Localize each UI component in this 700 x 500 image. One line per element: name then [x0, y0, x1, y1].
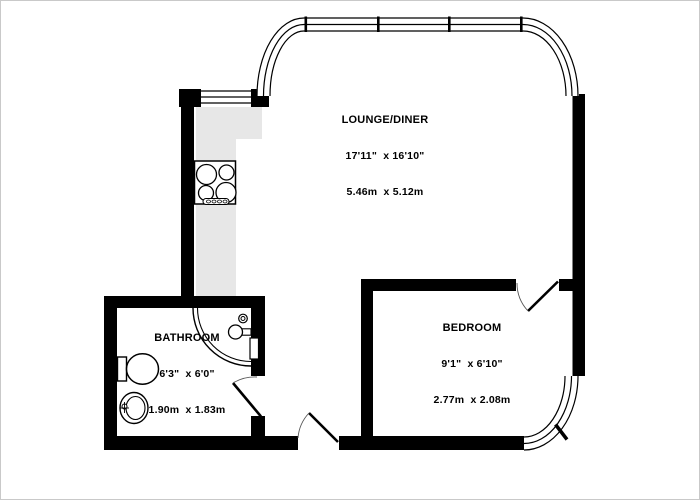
stove-icon — [195, 161, 237, 205]
room-size-imperial: 9'1" x 6'10" — [434, 358, 511, 370]
room-size-imperial: 6'3" x 6'0" — [149, 368, 226, 380]
bay-window-right-curve — [523, 18, 578, 96]
floorplan: LOUNGE/DINER 17'11" x 16'10" 5.46m x 5.1… — [0, 0, 700, 500]
room-size-metric: 1.90m x 1.83m — [149, 404, 226, 416]
room-name: BATHROOM — [149, 332, 226, 344]
bay-window-left-curve — [257, 18, 304, 96]
bedroom-label: BEDROOM 9'1" x 6'10" 2.77m x 2.08m — [434, 298, 511, 430]
room-size-imperial: 17'11" x 16'10" — [342, 150, 429, 162]
room-size-metric: 2.77m x 2.08m — [434, 394, 511, 406]
room-name: LOUNGE/DINER — [342, 114, 429, 126]
floorplan-canvas — [1, 1, 699, 499]
sink-icon — [120, 393, 148, 424]
kitchen-window — [201, 90, 251, 104]
room-name: BEDROOM — [434, 322, 511, 334]
entrance-door — [298, 413, 338, 442]
room-size-metric: 5.46m x 5.12m — [342, 186, 429, 198]
bedroom-door — [517, 282, 558, 312]
window-bottom-right-curve — [524, 376, 578, 450]
bathroom-door — [233, 377, 261, 417]
lounge-diner-label: LOUNGE/DINER 17'11" x 16'10" 5.46m x 5.1… — [342, 90, 429, 222]
bathroom-label: BATHROOM 6'3" x 6'0" 1.90m x 1.83m — [149, 308, 226, 440]
bay-window-top — [304, 17, 523, 33]
